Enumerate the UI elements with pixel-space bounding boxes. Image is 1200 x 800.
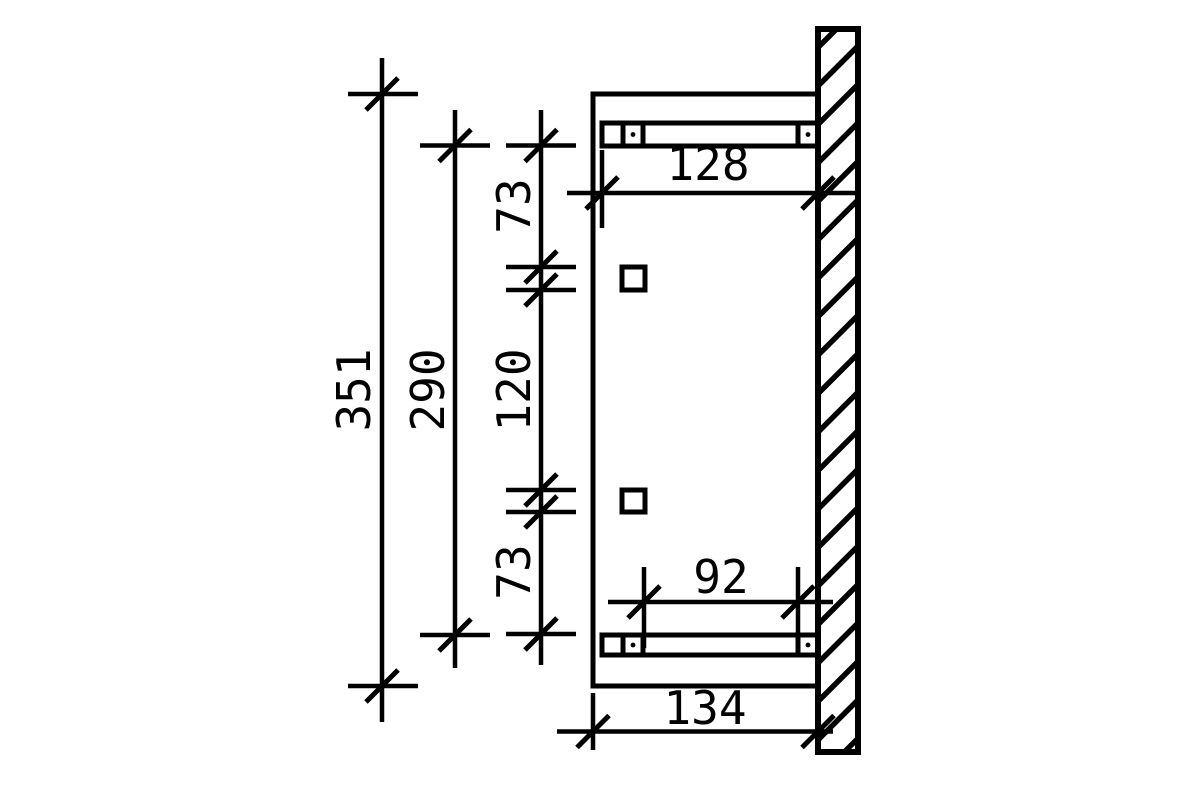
dim-label-chain-top: 73 bbox=[487, 178, 541, 233]
dim-label-bottom-beam-clear-span: 92 bbox=[693, 550, 748, 604]
dim-label-chain-middle: 120 bbox=[487, 348, 541, 431]
bottom-beam-left-bolt-dot bbox=[631, 643, 636, 648]
top-beam-right-bolt-dot bbox=[806, 132, 811, 137]
dim-label-total-height: 351 bbox=[327, 348, 381, 431]
bottom-beam-right-bolt-dot bbox=[806, 643, 811, 648]
dim-label-inner-height: 290 bbox=[401, 348, 455, 431]
wall-hatching bbox=[818, 29, 858, 752]
top-beam-left-bolt-dot bbox=[631, 132, 636, 137]
dim-label-top-beam-length: 128 bbox=[666, 137, 749, 191]
lower-purlin-section bbox=[622, 490, 645, 512]
dim-label-bottom-total-depth: 134 bbox=[663, 681, 746, 735]
bottom-beam bbox=[602, 635, 818, 655]
upper-purlin-section bbox=[622, 267, 645, 290]
wall-section bbox=[818, 29, 858, 752]
dim-label-chain-bottom: 73 bbox=[487, 544, 541, 599]
canopy-side-view-drawing: 351 290 73 120 73 128 92 134 bbox=[0, 0, 1200, 800]
technical-drawing-canvas: 351 290 73 120 73 128 92 134 bbox=[0, 0, 1200, 800]
